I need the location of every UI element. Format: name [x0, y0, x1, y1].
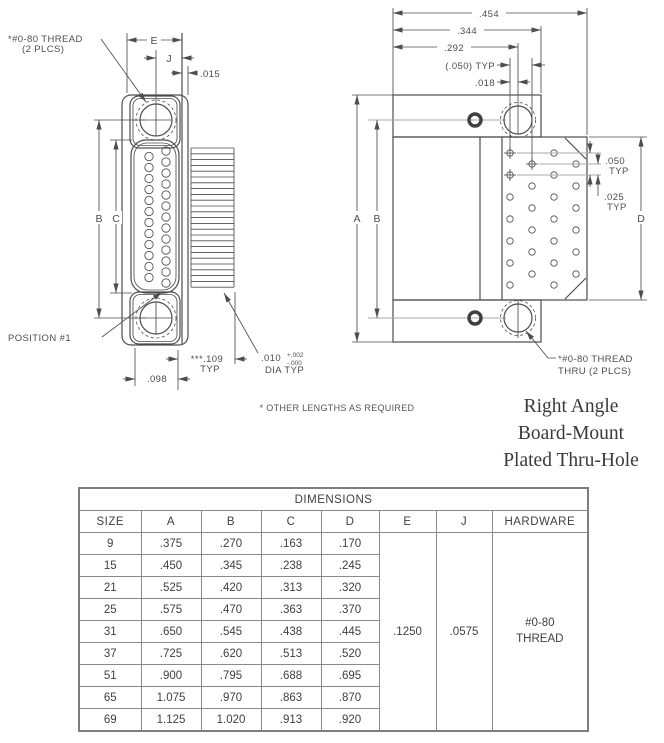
product-title: Right Angle Board-Mount Plated Thru-Hole — [503, 396, 639, 471]
table-cell: .920 — [321, 709, 379, 732]
pin-hole — [162, 257, 170, 265]
table-cell: 65 — [79, 687, 141, 709]
table-cell: .913 — [261, 709, 321, 732]
dim-a-label: A — [353, 213, 360, 225]
lead-hatch — [191, 148, 234, 287]
dim-010-label: .010 — [261, 353, 281, 364]
dim-050-typ-label: TYP — [609, 166, 629, 177]
table-merged-j: .0575 — [436, 533, 492, 732]
dim-b-right: B — [371, 120, 383, 318]
chamfer-top — [565, 138, 586, 159]
right-view: A B D .454 — [351, 7, 647, 377]
dim-050-paren-label: (.050) TYP — [445, 61, 495, 72]
dim-c: C — [110, 140, 132, 293]
dim-018: .018 — [475, 78, 530, 89]
thru-hole — [573, 205, 579, 211]
dim-344-label: .344 — [457, 26, 477, 37]
pin-hole — [145, 152, 153, 160]
table-cell: .650 — [141, 621, 201, 643]
table-cell: 25 — [79, 599, 141, 621]
dim-b-label: B — [95, 213, 102, 225]
dim-454: .454 — [393, 7, 587, 20]
table-cell: 37 — [79, 643, 141, 665]
dim-098: .098 — [123, 348, 190, 390]
chamfer-bottom — [565, 278, 586, 299]
table-cell: .575 — [141, 599, 201, 621]
table-cell: .313 — [261, 577, 321, 599]
bottom-flange — [393, 300, 541, 342]
position-label: POSITION #1 — [8, 333, 71, 344]
thru-hole — [573, 271, 579, 277]
table-cell: .438 — [261, 621, 321, 643]
dim-015-label: .015 — [200, 69, 220, 80]
thru-hole — [551, 194, 557, 200]
thru-hole — [529, 271, 535, 277]
thru-hole — [551, 216, 557, 222]
d-shell-inner — [134, 143, 176, 290]
pin-hole — [162, 158, 170, 166]
thru-hole — [573, 183, 579, 189]
table-title: DIMENSIONS — [79, 488, 588, 511]
pin-hole — [162, 268, 170, 276]
table-cell: 31 — [79, 621, 141, 643]
thru-hole — [507, 238, 513, 244]
pin-hole — [145, 174, 153, 182]
dim-344: .344 — [393, 24, 541, 37]
title-line1: Right Angle — [524, 396, 619, 417]
thread-callout-right: *#0-80 THREAD THRU (2 PLCS) — [526, 331, 633, 377]
thru-hole — [529, 183, 535, 189]
technical-drawing-page: E J .015 B C — [0, 0, 664, 743]
column-header-d: D — [321, 511, 379, 533]
column-header-c: C — [261, 511, 321, 533]
table-cell: .695 — [321, 665, 379, 687]
table-cell: .163 — [261, 533, 321, 555]
table-cell: 69 — [79, 709, 141, 732]
table-cell: .270 — [201, 533, 261, 555]
thru-hole — [573, 249, 579, 255]
pin-hole — [162, 213, 170, 221]
table-cell: .620 — [201, 643, 261, 665]
pin-hole — [162, 235, 170, 243]
table-cell: 51 — [79, 665, 141, 687]
table-cell: .345 — [201, 555, 261, 577]
top-flange — [393, 95, 541, 137]
pin-hole — [145, 218, 153, 226]
thru-hole — [551, 282, 557, 288]
dim-c-label: C — [112, 213, 120, 225]
table-cell: .450 — [141, 555, 201, 577]
table-cell: .245 — [321, 555, 379, 577]
thru-hole — [529, 227, 535, 233]
table-cell: 21 — [79, 577, 141, 599]
pin-hole — [162, 279, 170, 287]
pin-hole — [145, 185, 153, 193]
thru-hole — [507, 282, 513, 288]
table-cell: .545 — [201, 621, 261, 643]
thread-callout-left: *#0-80 THREAD (2 PLCS) — [8, 34, 146, 102]
title-line3: Plated Thru-Hole — [503, 450, 639, 471]
pin-hole — [145, 251, 153, 259]
thread-label-line2: (2 PLCS) — [22, 44, 64, 55]
dim-010-tol-plus: +.002 — [287, 352, 304, 359]
thru-hole — [529, 249, 535, 255]
d-shell-outer — [131, 140, 179, 293]
dim-010-sub: DIA TYP — [265, 365, 304, 376]
pin-hole — [145, 262, 153, 270]
table-cell: .970 — [201, 687, 261, 709]
table-cell: .863 — [261, 687, 321, 709]
table-cell: .238 — [261, 555, 321, 577]
dim-j-label: J — [166, 53, 171, 65]
column-header-a: A — [141, 511, 201, 533]
thru-hole — [507, 194, 513, 200]
dim-025-typ-label: TYP — [607, 202, 627, 213]
table-cell: .513 — [261, 643, 321, 665]
dim-454-label: .454 — [479, 9, 499, 20]
pin-field — [145, 147, 170, 287]
pin-hole — [162, 246, 170, 254]
pin-hole — [145, 240, 153, 248]
table-header-row: SIZEABCDEJHARDWARE — [79, 511, 588, 533]
pin-hole — [162, 224, 170, 232]
column-header-b: B — [201, 511, 261, 533]
thru-hole — [551, 238, 557, 244]
dim-292: .292 — [393, 41, 518, 54]
table-title-row: DIMENSIONS — [79, 488, 588, 511]
pin-hole — [162, 191, 170, 199]
table-row: 9.375.270.163.170.1250.0575#0-80 THREAD — [79, 533, 588, 555]
dim-292-label: .292 — [444, 43, 464, 54]
dim-098-label: .098 — [147, 374, 167, 385]
column-header-size: SIZE — [79, 511, 141, 533]
table-cell: .900 — [141, 665, 201, 687]
dim-015: .015 — [171, 66, 220, 95]
left-view: E J .015 B C — [8, 33, 304, 390]
table-merged-e: .1250 — [379, 533, 436, 732]
table-cell: .375 — [141, 533, 201, 555]
pin-hole — [145, 163, 153, 171]
pin-hole — [162, 180, 170, 188]
thru-hole — [573, 227, 579, 233]
dim-109-typ: TYP — [200, 364, 220, 375]
pin-hole — [145, 196, 153, 204]
table-cell: .370 — [321, 599, 379, 621]
pin-hole — [162, 202, 170, 210]
table-cell: .688 — [261, 665, 321, 687]
column-header-j: J — [436, 511, 492, 533]
thru-hole — [507, 216, 513, 222]
connector-drawing: E J .015 B C — [0, 0, 664, 480]
thru-hole — [529, 205, 535, 211]
table-cell: .320 — [321, 577, 379, 599]
table-cell: .520 — [321, 643, 379, 665]
pin-hole — [145, 273, 153, 281]
pin-hole — [145, 207, 153, 215]
dim-010-callout: .010 +.002 -.000 DIA TYP — [224, 293, 304, 376]
table-cell: .445 — [321, 621, 379, 643]
table-cell: 9 — [79, 533, 141, 555]
title-line2: Board-Mount — [518, 423, 625, 444]
table-cell: .525 — [141, 577, 201, 599]
table-cell: .795 — [201, 665, 261, 687]
thru-hole-pattern — [507, 150, 579, 288]
table-cell: .170 — [321, 533, 379, 555]
connector-body-outline — [122, 95, 188, 345]
table-cell: 1.075 — [141, 687, 201, 709]
dim-e: E — [127, 33, 182, 93]
dim-e-label: E — [150, 35, 157, 47]
table-cell: .420 — [201, 577, 261, 599]
column-header-hardware: HARDWARE — [492, 511, 588, 533]
table-cell: .363 — [261, 599, 321, 621]
pin-hole — [145, 229, 153, 237]
thread-thru-line2: THRU (2 PLCS) — [558, 366, 631, 377]
dim-b-right-label: B — [373, 213, 380, 225]
side-body — [393, 137, 587, 300]
table-cell: 1.020 — [201, 709, 261, 732]
table-merged-hardware: #0-80 THREAD — [492, 533, 588, 732]
dim-018-label: .018 — [475, 78, 495, 89]
table-cell: 15 — [79, 555, 141, 577]
thru-hole — [551, 260, 557, 266]
pin-hole — [162, 169, 170, 177]
thru-hole — [507, 260, 513, 266]
table-cell: .470 — [201, 599, 261, 621]
dim-050-paren: (.050) TYP — [445, 61, 545, 72]
dimensions-table: DIMENSIONS SIZEABCDEJHARDWARE 9.375.270.… — [78, 487, 589, 732]
table-cell: .870 — [321, 687, 379, 709]
dim-d-label: D — [637, 213, 645, 225]
other-lengths-note: * OTHER LENGTHS AS REQUIRED — [260, 403, 415, 413]
thread-thru-line1: *#0-80 THREAD — [558, 354, 633, 365]
thru-hole-crosses — [504, 147, 538, 181]
table-cell: 1.125 — [141, 709, 201, 732]
column-header-e: E — [379, 511, 436, 533]
table-cell: .725 — [141, 643, 201, 665]
